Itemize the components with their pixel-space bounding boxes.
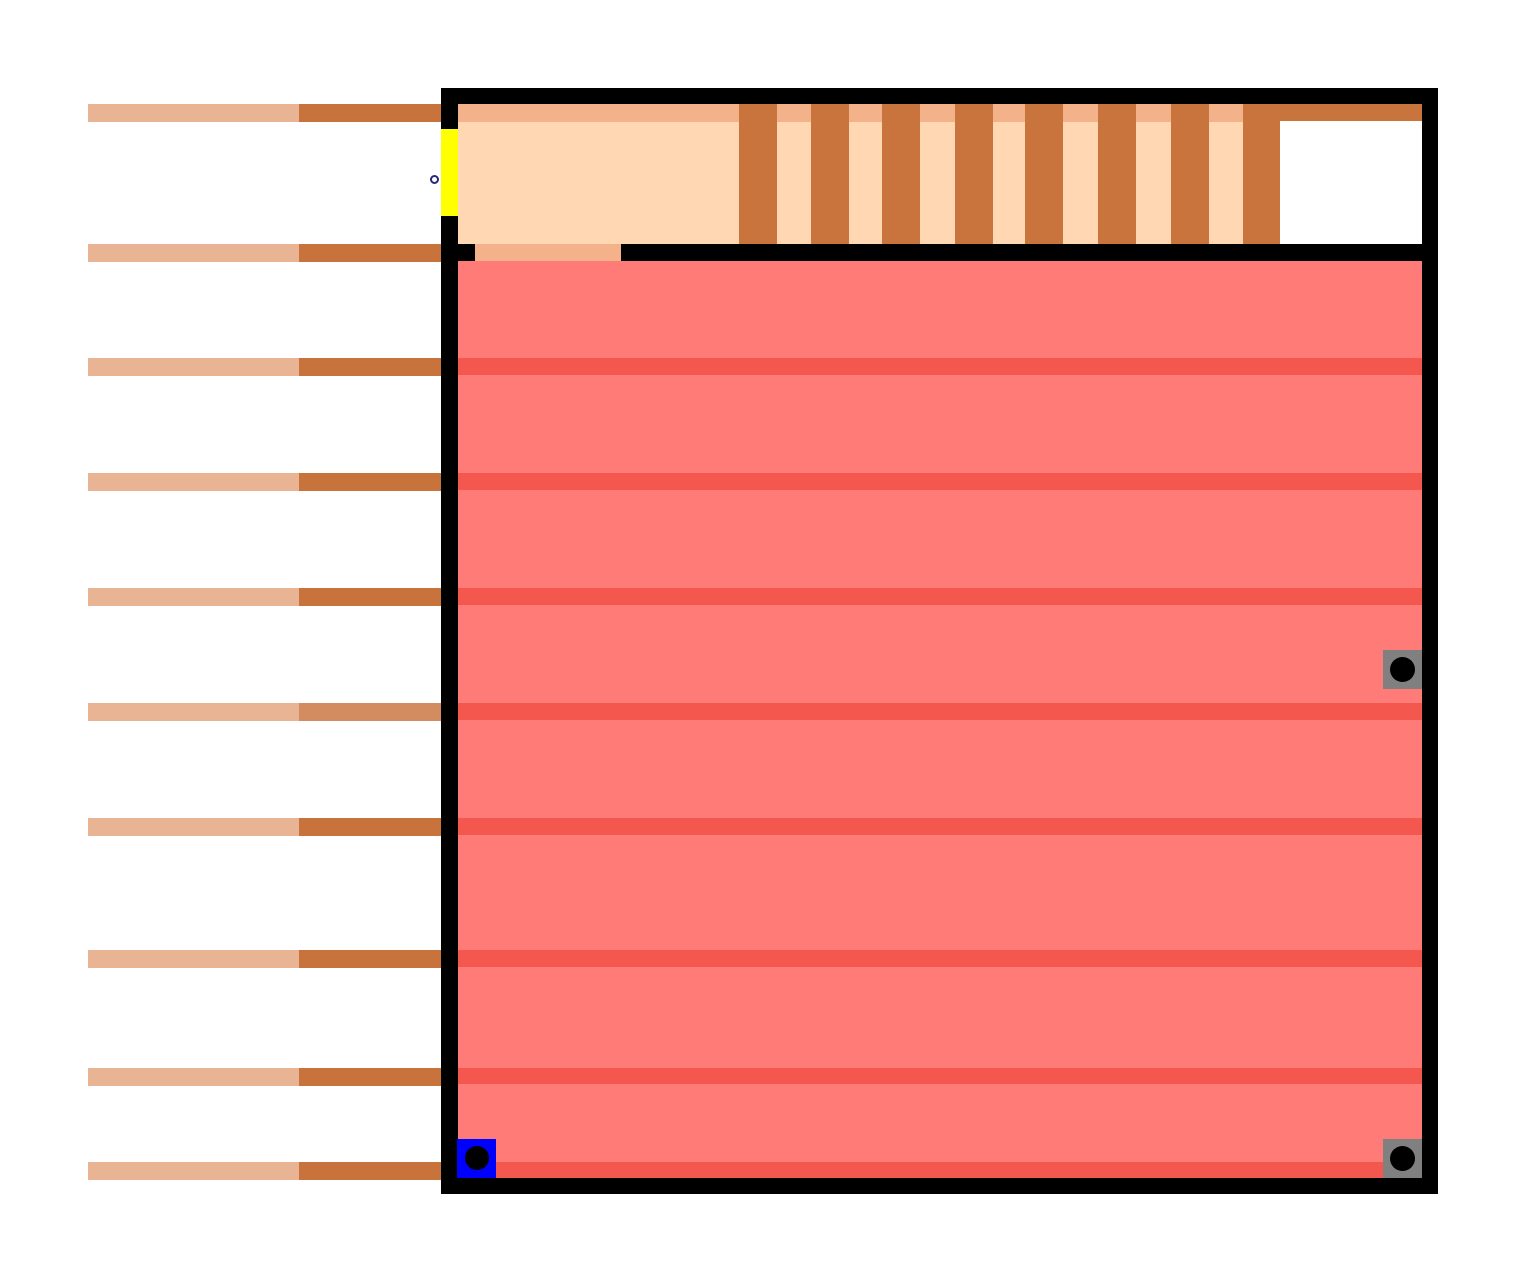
blue-switch-dot — [465, 1146, 489, 1170]
gray-switch-dot — [1390, 1146, 1415, 1171]
game-level-canvas[interactable] — [0, 0, 1527, 1283]
door-marker-circle[interactable] — [430, 175, 439, 184]
yellow-door[interactable] — [441, 129, 458, 216]
interactive-objects — [0, 0, 1527, 1283]
gray-switch-dot — [1390, 657, 1415, 682]
